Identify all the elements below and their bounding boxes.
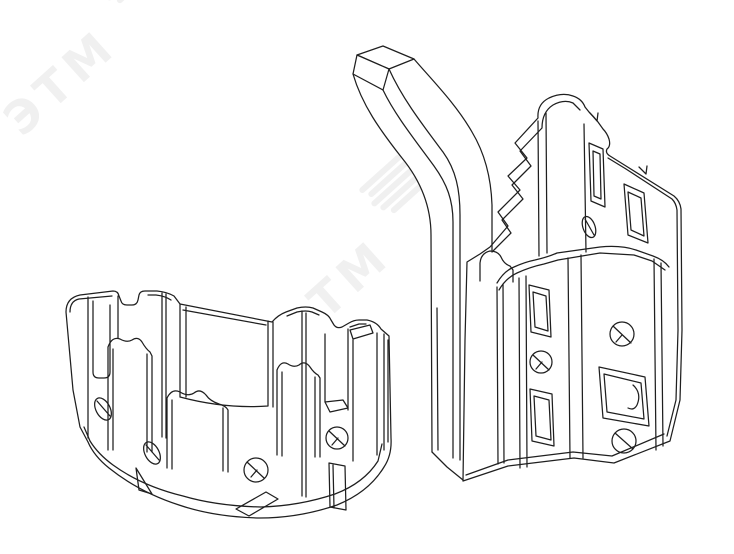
right-bracket-part	[353, 46, 682, 481]
product-image: ЭТМ ЭТМ	[0, 0, 734, 554]
watermark-text: ЭТМ	[0, 18, 127, 146]
watermark-top-left: ЭТМ	[0, 0, 185, 146]
left-part-silhouette	[66, 291, 391, 518]
watermark-logo-icon	[84, 0, 155, 11]
left-bracket-part	[66, 291, 391, 518]
